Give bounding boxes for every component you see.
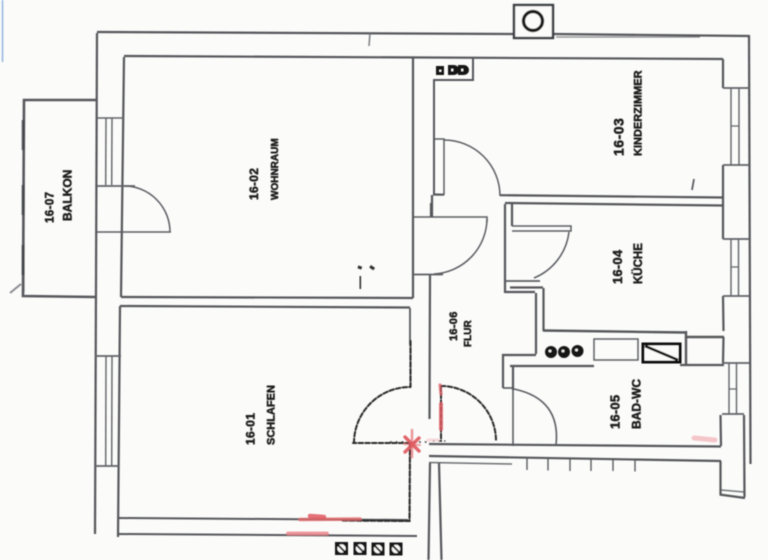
svg-text:BAD-WC: BAD-WC — [630, 379, 644, 429]
svg-text:WOHNRAUM: WOHNRAUM — [270, 138, 281, 200]
svg-text:16-01: 16-01 — [244, 413, 258, 445]
svg-text:16-06: 16-06 — [448, 311, 460, 341]
svg-text:16-03: 16-03 — [611, 118, 627, 156]
svg-text:16-05: 16-05 — [608, 395, 623, 429]
svg-text:BALKON: BALKON — [61, 170, 75, 221]
svg-text:16-04: 16-04 — [610, 249, 625, 284]
svg-text:16-07: 16-07 — [45, 192, 57, 223]
svg-text:KÜCHE: KÜCHE — [632, 243, 645, 284]
svg-text:FLUR: FLUR — [463, 320, 474, 347]
svg-text:16-02: 16-02 — [247, 168, 261, 200]
svg-text:SCHLAFEN: SCHLAFEN — [266, 385, 278, 445]
svg-text:KINDERZIMMER: KINDERZIMMER — [633, 70, 645, 156]
